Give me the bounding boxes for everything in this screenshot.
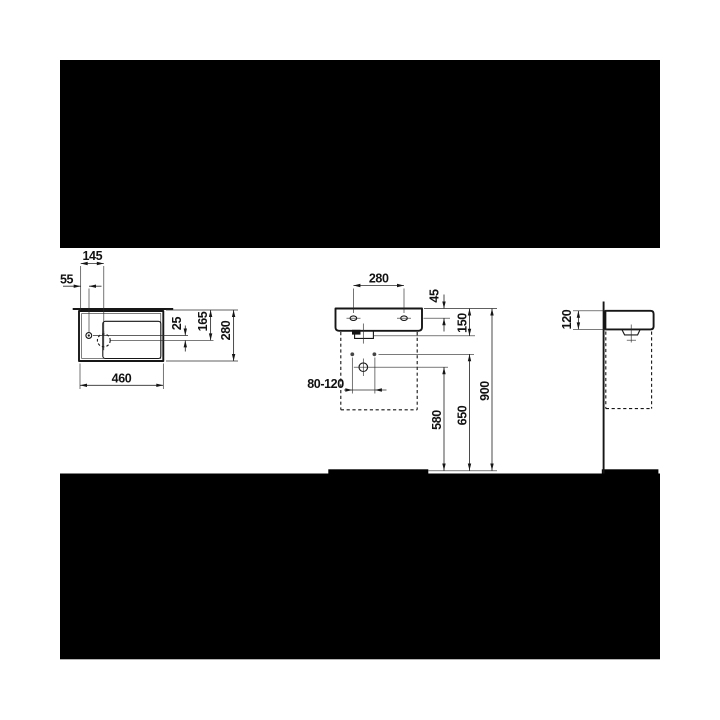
- side-view: 120: [560, 302, 654, 474]
- dim-label-280-depth: 280: [219, 320, 233, 340]
- dim-label-80-120: 80-120: [307, 377, 344, 391]
- top-view: 145 55 25 165 280 460: [60, 249, 238, 389]
- dim-label-280-holes: 280: [369, 272, 389, 286]
- connection-hole-left: [350, 352, 354, 356]
- top-letterbox-bar: [60, 60, 660, 248]
- dim-label-55: 55: [60, 273, 74, 287]
- dim-label-145: 145: [82, 249, 102, 263]
- drain-outlet-block: [352, 330, 361, 335]
- connection-hole-right: [373, 352, 377, 356]
- concealed-unit-dashed-side: [606, 332, 652, 409]
- washbasin-technical-drawing: 145 55 25 165 280 460: [0, 0, 720, 720]
- dim-label-25: 25: [170, 317, 184, 331]
- dim-label-900: 900: [478, 381, 492, 401]
- basin-outline-side: [605, 311, 653, 330]
- dim-label-460: 460: [112, 372, 132, 386]
- floor-strip-front-view: [328, 469, 428, 474]
- dim-label-165: 165: [196, 311, 210, 331]
- dim-label-45: 45: [427, 289, 441, 303]
- dim-label-120: 120: [560, 309, 574, 329]
- dim-label-150: 150: [455, 313, 469, 333]
- overflow-hole-center: [88, 334, 90, 336]
- bottom-letterbox-bar: [60, 474, 660, 660]
- dim-label-650: 650: [455, 405, 469, 425]
- side-view-dimension-lines: [577, 311, 580, 330]
- floor-strip-side-view: [602, 469, 659, 474]
- dim-label-580: 580: [430, 410, 444, 430]
- basin-outline-front: [336, 309, 423, 331]
- product-dimension-drawing: 145 55 25 165 280 460: [0, 0, 720, 720]
- front-view: 280 45 150 80-120 580 650 900: [307, 272, 497, 471]
